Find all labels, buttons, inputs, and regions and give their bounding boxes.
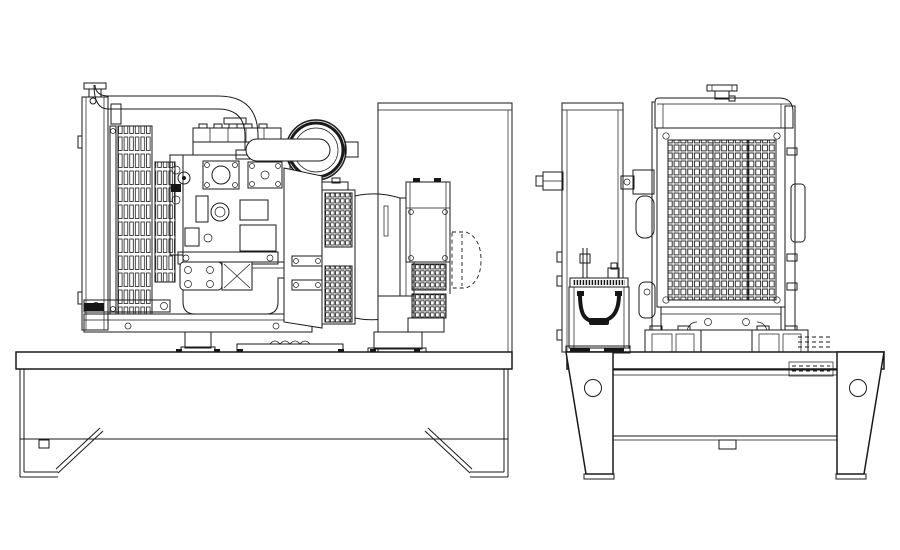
engine-mount-bracket [178, 252, 278, 290]
battery-holddown [580, 254, 590, 263]
radiator-louver-panel [118, 126, 175, 314]
generator-drawing [0, 0, 900, 550]
battery-tray [570, 278, 628, 287]
radiator-tie-rod [110, 126, 116, 314]
base-leg-right [836, 352, 884, 479]
intake-plate [203, 161, 239, 189]
bed-rail [84, 314, 312, 332]
terminal-box-shelf [408, 318, 444, 332]
radiator-side [78, 83, 312, 332]
air-outlet-stub [345, 142, 358, 157]
valve-cover [193, 118, 281, 142]
starter-motor [211, 203, 229, 221]
skid-notch [39, 440, 49, 448]
radiator-front [621, 85, 808, 352]
flywheel-housing [284, 168, 322, 328]
stand-side-box [536, 172, 563, 190]
fan-cowl-hidden [450, 226, 481, 294]
alternator [284, 168, 426, 352]
end-view [536, 85, 884, 479]
base-leg-left [566, 352, 614, 479]
radiator-mount-right [752, 326, 808, 352]
radiator-right-channel [785, 106, 795, 330]
terminal-box-vents [412, 264, 446, 318]
radiator-right-bracket [791, 184, 805, 242]
fuel-filter [196, 196, 208, 222]
hose-clamp [111, 104, 121, 124]
radiator-bottom-tank [661, 307, 781, 330]
base-skid-side [16, 349, 512, 477]
alternator-vent-band [322, 190, 355, 324]
base-tab [719, 440, 736, 449]
side-plate [248, 162, 282, 188]
technical-drawing-canvas [0, 0, 900, 550]
engine-foot [181, 332, 215, 352]
radiator-mount-left [645, 326, 701, 352]
base-skid-end [566, 337, 884, 479]
skid-brace-left [56, 428, 103, 473]
side-view [16, 83, 512, 477]
terminal-box [406, 178, 450, 332]
battery [566, 248, 630, 353]
air-intake-tube [246, 139, 330, 161]
radiator-top-tank [655, 98, 793, 128]
alternator-foot [368, 332, 426, 352]
skid-brace-right [425, 428, 472, 473]
sump-guard-plate [237, 341, 343, 352]
radiator-grille [657, 128, 785, 307]
